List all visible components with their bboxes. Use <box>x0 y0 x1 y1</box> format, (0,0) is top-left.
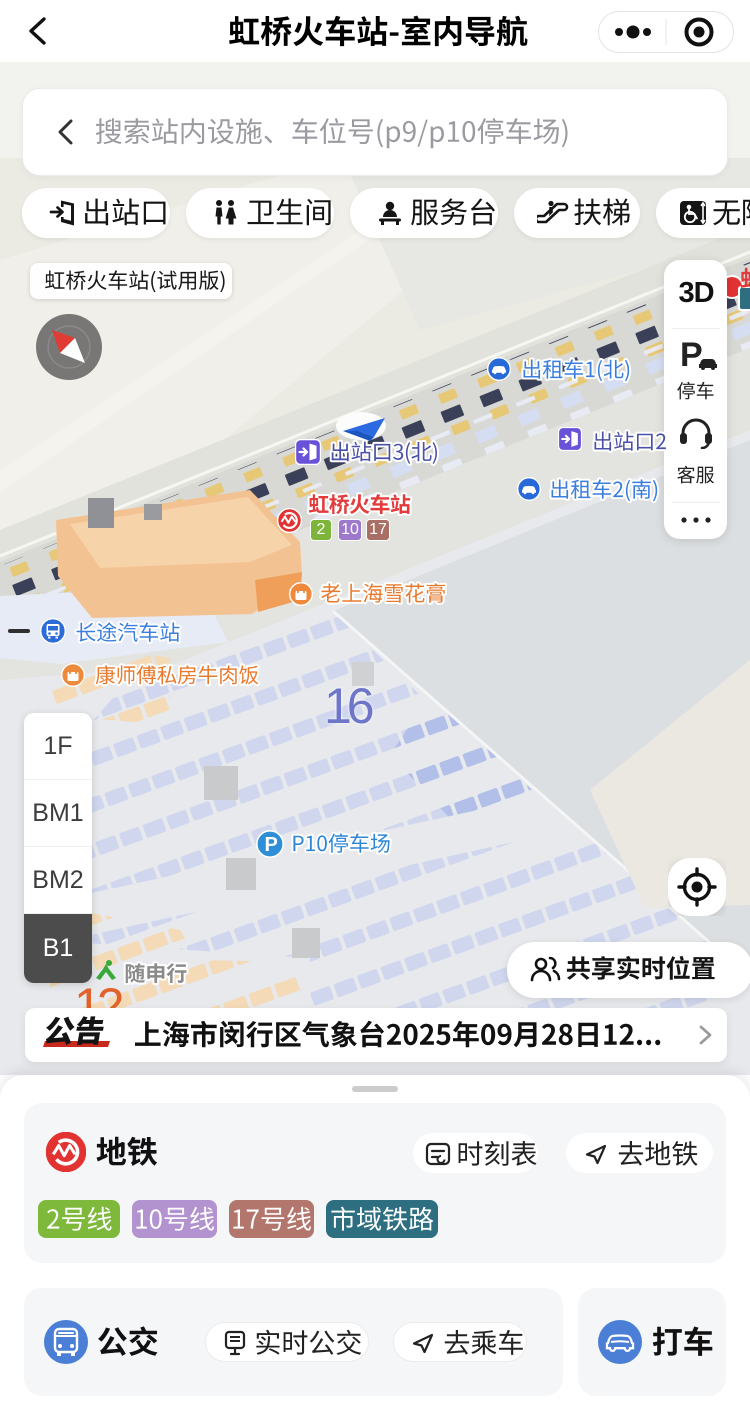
svg-text:P: P <box>265 834 278 856</box>
